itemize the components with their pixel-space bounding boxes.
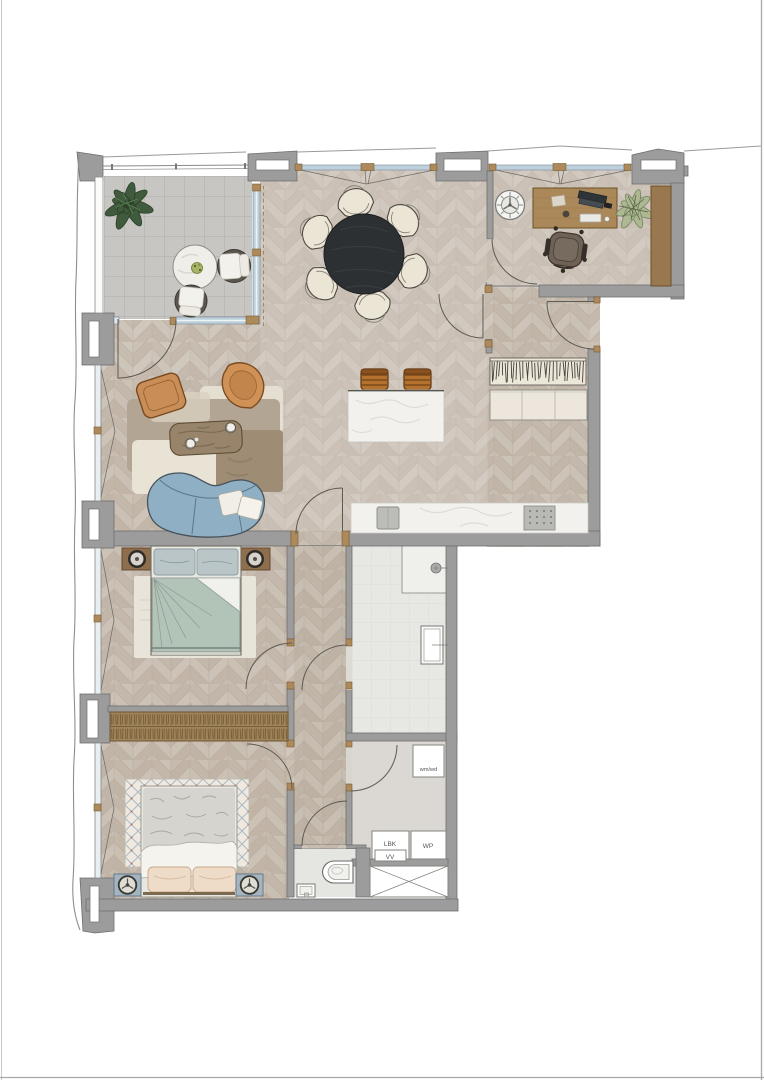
svg-text:WP: WP — [423, 843, 433, 850]
svg-text:wm/wd: wm/wd — [419, 767, 437, 773]
svg-text:LBK: LBK — [384, 841, 397, 848]
svg-text:VV: VV — [386, 854, 395, 861]
